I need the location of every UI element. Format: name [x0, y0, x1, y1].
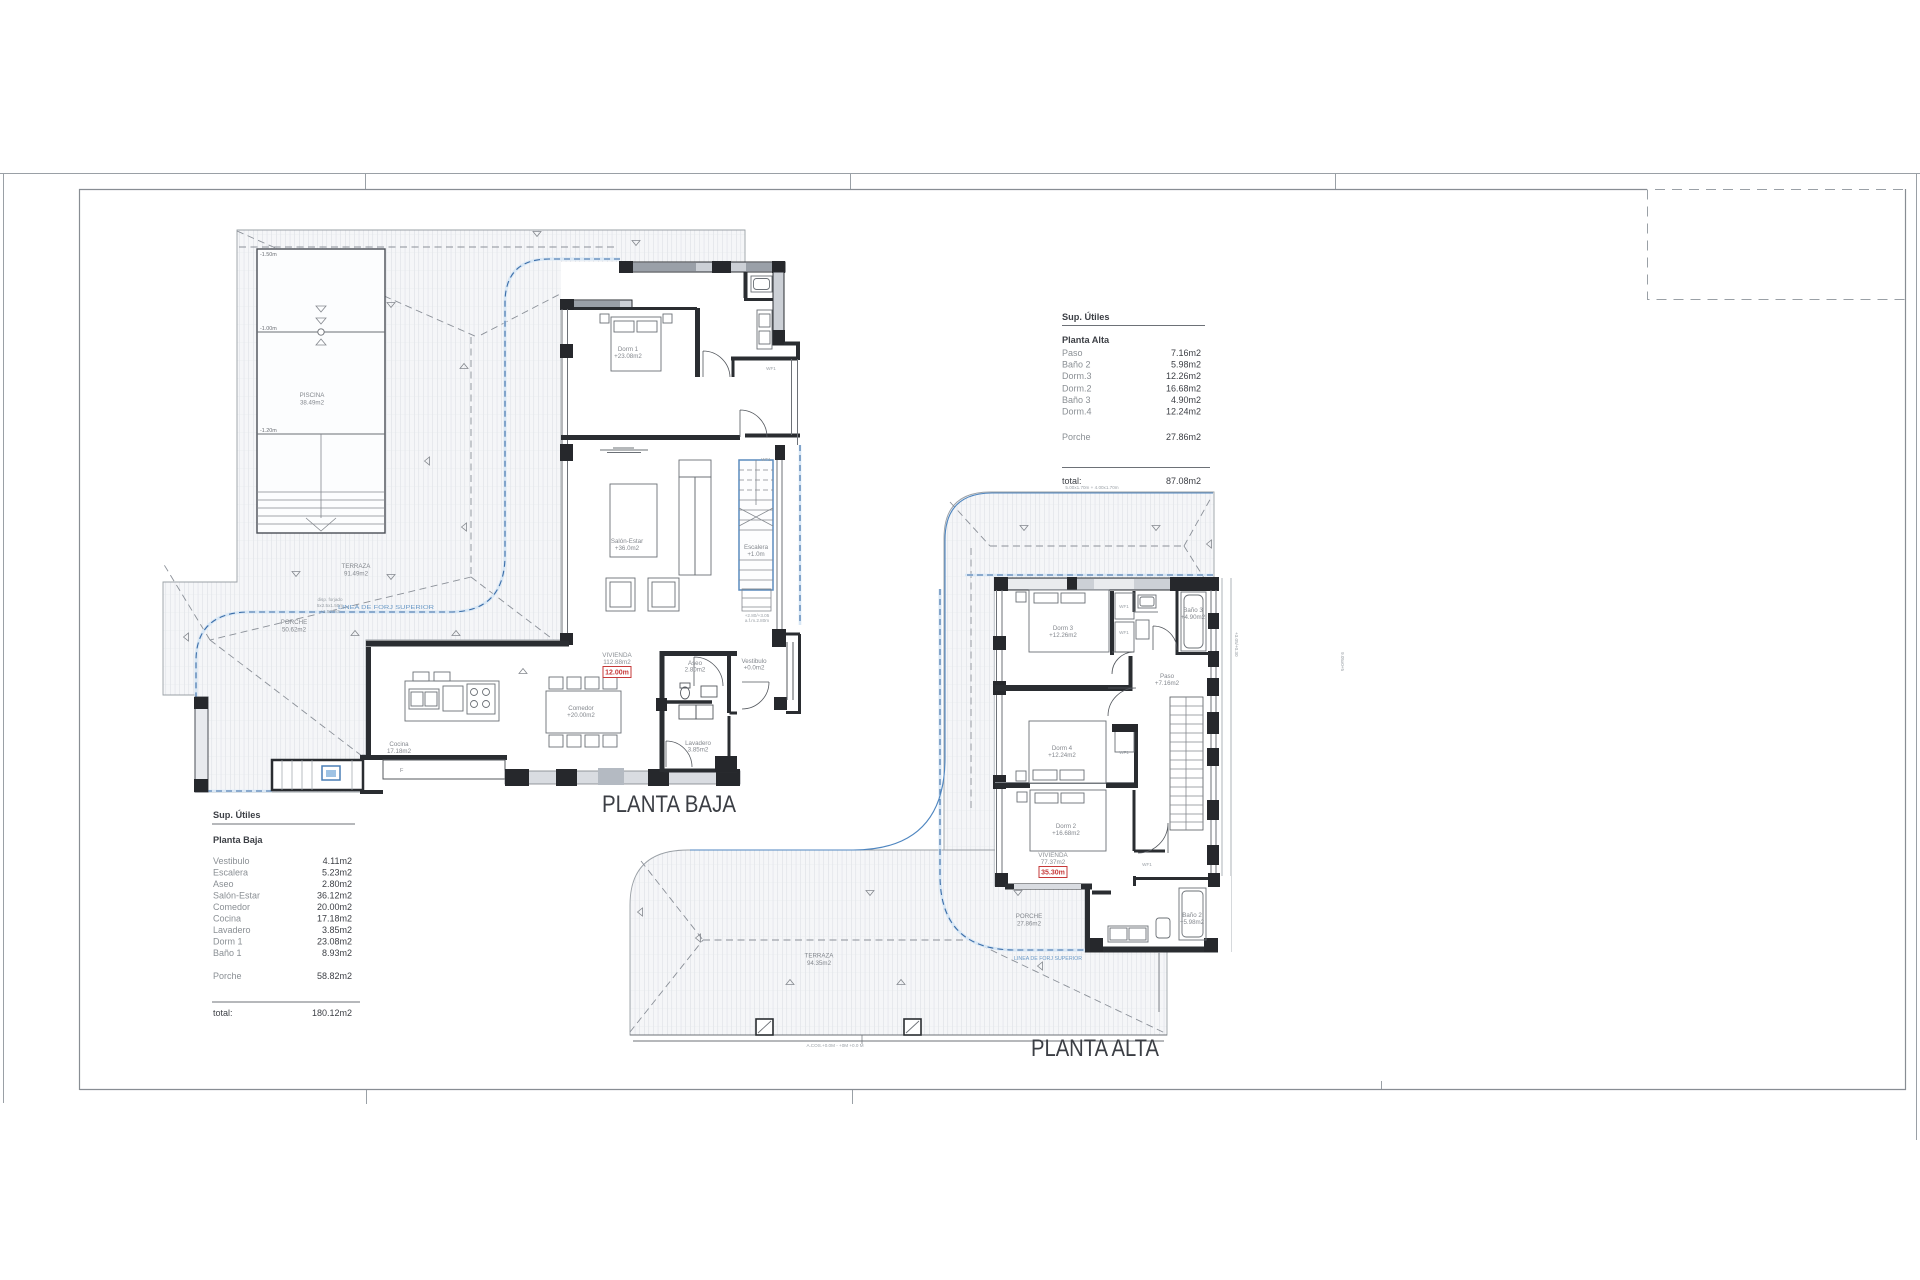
svg-text:Comedor: Comedor — [568, 705, 593, 712]
svg-text:Salón-Estar: Salón-Estar — [611, 538, 643, 545]
svg-text:WF1: WF1 — [1119, 604, 1129, 609]
svg-text:Planta Baja: Planta Baja — [213, 835, 263, 845]
svg-text:Baño 3: Baño 3 — [1183, 607, 1203, 614]
svg-text:7.16m2: 7.16m2 — [1171, 348, 1201, 358]
svg-text:27.86m2: 27.86m2 — [1017, 921, 1042, 928]
svg-text:+36.0m2: +36.0m2 — [615, 545, 640, 552]
svg-text:Baño 1: Baño 1 — [213, 948, 242, 958]
svg-text:2.80m2: 2.80m2 — [322, 879, 352, 889]
svg-text:Vestibulo: Vestibulo — [213, 856, 250, 866]
svg-text:Escalera: Escalera — [744, 544, 769, 551]
svg-text:12.00m: 12.00m — [605, 670, 629, 677]
svg-text:Baño 2: Baño 2 — [1182, 912, 1202, 919]
svg-text:5.00x1.70m + 4.00x1.70m: 5.00x1.70m + 4.00x1.70m — [1065, 485, 1118, 490]
svg-text:4.90m2: 4.90m2 — [1171, 395, 1201, 405]
svg-text:+7.16m2: +7.16m2 — [1155, 680, 1180, 687]
svg-text:+0.0m2: +0.0m2 — [744, 665, 765, 672]
svg-text:WF1: WF1 — [1119, 630, 1129, 635]
svg-text:PORCHE: PORCHE — [1016, 913, 1042, 920]
svg-text:Cocina: Cocina — [213, 914, 241, 924]
svg-text:Dorm 3: Dorm 3 — [1053, 625, 1074, 632]
svg-text:Dorm.3: Dorm.3 — [1062, 371, 1092, 381]
svg-text:-1.50m: -1.50m — [260, 252, 277, 258]
svg-text:PORCHE: PORCHE — [281, 619, 307, 626]
svg-text:Baño 2: Baño 2 — [1062, 360, 1091, 370]
svg-text:Paso: Paso — [1160, 673, 1175, 680]
svg-text:3.85m2: 3.85m2 — [322, 925, 352, 935]
svg-text:total:: total: — [213, 1008, 233, 1018]
svg-text:PISCINA: PISCINA — [300, 392, 326, 399]
svg-text:23.08m2: 23.08m2 — [317, 937, 352, 947]
svg-text:Sup. Útiles: Sup. Útiles — [1062, 311, 1109, 322]
svg-text:+3.05/+0.30: +3.05/+0.30 — [1234, 632, 1239, 657]
svg-text:+4.90m2: +4.90m2 — [1181, 614, 1206, 621]
svg-text:94.35m2: 94.35m2 — [807, 960, 832, 967]
svg-text:+16.68m2: +16.68m2 — [1052, 830, 1080, 837]
svg-text:Cocina: Cocina — [389, 741, 409, 748]
svg-text:a.f.m.2.80m: a.f.m.2.80m — [745, 618, 769, 623]
svg-text:4.11m2: 4.11m2 — [323, 856, 352, 866]
svg-text:Dorm 2: Dorm 2 — [1056, 823, 1077, 830]
svg-text:Dorm.2: Dorm.2 — [1062, 384, 1092, 394]
svg-text:180.12m2: 180.12m2 — [312, 1008, 352, 1018]
svg-text:2.80m2: 2.80m2 — [685, 667, 706, 674]
svg-text:A.COS.+0.0M - +0M +0.0 M: A.COS.+0.0M - +0M +0.0 M — [806, 1043, 863, 1048]
svg-text:VIVIENDA: VIVIENDA — [602, 652, 632, 659]
svg-text:Aseo: Aseo — [213, 879, 234, 889]
svg-text:50.62m2: 50.62m2 — [282, 627, 307, 634]
svg-text:disp. forjado: disp. forjado — [317, 597, 342, 602]
svg-text:Salón-Estar: Salón-Estar — [213, 891, 260, 901]
svg-text:8.93m2: 8.93m2 — [322, 948, 352, 958]
svg-text:+12.26m2: +12.26m2 — [1049, 632, 1077, 639]
svg-text:WF1: WF1 — [1142, 862, 1152, 867]
svg-text:Baño 3: Baño 3 — [1062, 395, 1091, 405]
svg-text:Dorm 4: Dorm 4 — [1052, 745, 1073, 752]
svg-text:Comedor: Comedor — [213, 902, 250, 912]
svg-text:Dorm 1: Dorm 1 — [618, 346, 639, 353]
svg-text:112.88m2: 112.88m2 — [603, 659, 631, 666]
svg-text:-1.00m: -1.00m — [260, 326, 277, 332]
svg-text:+12.24m2: +12.24m2 — [1048, 752, 1076, 759]
svg-text:WF1: WF1 — [761, 457, 771, 462]
svg-text:36.12m2: 36.12m2 — [317, 891, 352, 901]
svg-text:35.30m: 35.30m — [1041, 870, 1065, 877]
svg-text:Porche: Porche — [1062, 432, 1091, 442]
svg-text:Porche: Porche — [213, 971, 242, 981]
svg-text:TERRAZA: TERRAZA — [342, 563, 372, 570]
svg-text:Paso: Paso — [1062, 348, 1083, 358]
svg-text:Dorm.4: Dorm.4 — [1062, 407, 1092, 417]
svg-text:91.49m2: 91.49m2 — [344, 571, 369, 578]
svg-text:+5.98m2: +5.98m2 — [1180, 919, 1205, 926]
svg-text:WF1: WF1 — [1119, 750, 1129, 755]
svg-text:PLANTA BAJA: PLANTA BAJA — [602, 791, 736, 818]
svg-text:12.26m2: 12.26m2 — [1166, 371, 1201, 381]
svg-text:Sup. Útiles: Sup. Útiles — [213, 809, 260, 820]
svg-text:+1.0m: +1.0m — [747, 551, 764, 558]
svg-text:87.08m2: 87.08m2 — [1166, 476, 1201, 486]
svg-text:5.23m2: 5.23m2 — [322, 868, 352, 878]
svg-text:17.18m2: 17.18m2 — [317, 914, 352, 924]
svg-text:Lavadero: Lavadero — [213, 925, 251, 935]
svg-text:17.18m2: 17.18m2 — [387, 748, 412, 755]
svg-text:12.24m2: 12.24m2 — [1166, 407, 1201, 417]
svg-text:38.49m2: 38.49m2 — [300, 400, 325, 407]
svg-text:20.00m2: 20.00m2 — [317, 902, 352, 912]
svg-text:VIVIENDA: VIVIENDA — [1038, 852, 1068, 859]
svg-text:+20.00m2: +20.00m2 — [567, 712, 595, 719]
svg-text:-1.20m: -1.20m — [260, 428, 277, 434]
svg-text:5.98m2: 5.98m2 — [1171, 360, 1201, 370]
svg-text:58.82m2: 58.82m2 — [317, 971, 352, 981]
svg-text:16.68m2: 16.68m2 — [1166, 384, 1201, 394]
svg-text:PLANTA ALTA: PLANTA ALTA — [1031, 1035, 1159, 1062]
svg-text:WF1: WF1 — [766, 366, 776, 371]
svg-text:9.05x0+5: 9.05x0+5 — [1340, 652, 1345, 671]
svg-text:Dorm 1: Dorm 1 — [213, 937, 243, 947]
svg-text:27.86m2: 27.86m2 — [1166, 432, 1201, 442]
svg-text:LINEA DE FORJ SUPERIOR: LINEA DE FORJ SUPERIOR — [338, 605, 434, 611]
svg-text:TERRAZA: TERRAZA — [805, 953, 835, 960]
svg-text:+23.08m2: +23.08m2 — [614, 353, 642, 360]
svg-text:3.85m2: 3.85m2 — [688, 747, 709, 754]
svg-text:Escalera: Escalera — [213, 868, 248, 878]
svg-text:Planta Alta: Planta Alta — [1062, 335, 1110, 345]
svg-text:LINEA DE FORJ SUPERIOR: LINEA DE FORJ SUPERIOR — [1014, 956, 1082, 962]
svg-text:77.37m2: 77.37m2 — [1041, 859, 1066, 866]
